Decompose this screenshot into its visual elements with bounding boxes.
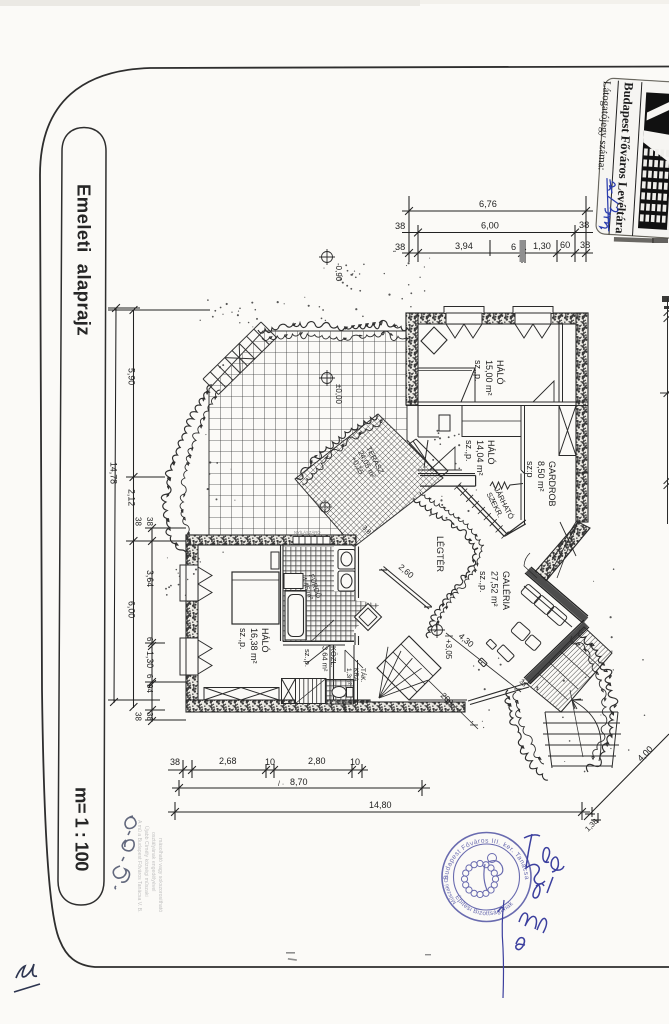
svg-text:38: 38 xyxy=(579,220,589,230)
svg-text:16,38 m²: 16,38 m² xyxy=(249,628,259,664)
svg-text:38: 38 xyxy=(134,712,143,721)
svg-text:8,70: 8,70 xyxy=(290,777,308,787)
svg-text:sz.,p.: sz.,p. xyxy=(464,440,474,462)
svg-text:10: 10 xyxy=(265,757,275,767)
svg-text:sz.,p.: sz.,p. xyxy=(238,628,248,650)
svg-text:38: 38 xyxy=(145,712,154,721)
svg-text:HÁLÓ: HÁLÓ xyxy=(486,440,496,465)
svg-text:14,80: 14,80 xyxy=(369,800,392,810)
svg-text:60: 60 xyxy=(560,240,570,250)
svg-text:2,12: 2,12 xyxy=(127,489,137,506)
svg-text:sz.,p.: sz.,p. xyxy=(303,649,312,667)
svg-text:38: 38 xyxy=(580,240,590,250)
svg-text:LÉGTÉR: LÉGTÉR xyxy=(435,536,445,573)
svg-text:1,30: 1,30 xyxy=(533,241,551,251)
svg-text:5,90: 5,90 xyxy=(127,368,137,385)
svg-text:osztályának engedélyével: osztályának engedélyével xyxy=(150,832,156,891)
svg-text:sz:p: sz:p xyxy=(525,461,535,478)
svg-text:sz.,p.: sz.,p. xyxy=(478,571,488,593)
svg-text:Újabb Címély községi műszaki: Újabb Címély községi műszaki xyxy=(143,826,150,897)
svg-text:6: 6 xyxy=(145,674,154,679)
svg-text:+3,05: +3,05 xyxy=(444,639,453,660)
svg-text:másolható vagy sokszorosítható: másolható vagy sokszorosítható xyxy=(157,838,163,912)
svg-text:NYÍLÁSZÁRÓ: NYÍLÁSZÁRÓ xyxy=(294,530,321,535)
svg-text:38: 38 xyxy=(170,757,180,767)
svg-text:8,50 m²: 8,50 m² xyxy=(536,461,546,492)
svg-text:A mű a Budapest Főváros Tanács: A mű a Budapest Főváros Tanácsa V. B. xyxy=(136,820,142,913)
svg-text:6,76: 6,76 xyxy=(479,199,497,209)
svg-text:6: 6 xyxy=(145,637,154,642)
svg-text:14,04 m²: 14,04 m² xyxy=(475,440,485,476)
svg-text:6,00: 6,00 xyxy=(481,221,499,231)
svg-text:38: 38 xyxy=(145,517,154,526)
svg-text:Emeleti alaprajz: Emeleti alaprajz xyxy=(74,184,95,336)
svg-text:27,52 m²: 27,52 m² xyxy=(490,571,500,607)
svg-text:GALÉRIA: GALÉRIA xyxy=(501,571,511,610)
svg-text:3,94: 3,94 xyxy=(455,241,473,251)
svg-text:/ ·: / · xyxy=(278,781,284,788)
svg-text:38: 38 xyxy=(134,517,143,526)
svg-text:3,64 m²: 3,64 m² xyxy=(321,646,330,672)
svg-text:10: 10 xyxy=(350,757,360,767)
svg-text:m= 1 : 100: m= 1 : 100 xyxy=(72,787,93,872)
svg-text:HÁLÓ: HÁLÓ xyxy=(495,360,505,385)
svg-text:14,78: 14,78 xyxy=(109,462,119,484)
svg-text:TÁK.: TÁK. xyxy=(359,668,368,683)
svg-text:-0,90: -0,90 xyxy=(334,263,343,282)
svg-text:±0,00: ±0,00 xyxy=(334,384,343,405)
svg-text:GARDROB: GARDROB xyxy=(547,461,557,507)
svg-text:15,00 m²: 15,00 m² xyxy=(484,360,494,396)
svg-text:1,30: 1,30 xyxy=(145,651,155,668)
svg-text:sz.,p.: sz.,p. xyxy=(473,360,483,382)
svg-text:6,00: 6,00 xyxy=(127,601,137,618)
svg-text:HÁLÓ: HÁLÓ xyxy=(260,628,270,653)
svg-text:38: 38 xyxy=(395,242,405,252)
svg-text:2,80: 2,80 xyxy=(308,756,326,766)
svg-text:94: 94 xyxy=(145,684,154,693)
svg-text:6: 6 xyxy=(511,242,516,252)
svg-text:38: 38 xyxy=(395,221,405,231)
svg-text:2,68: 2,68 xyxy=(219,756,237,766)
